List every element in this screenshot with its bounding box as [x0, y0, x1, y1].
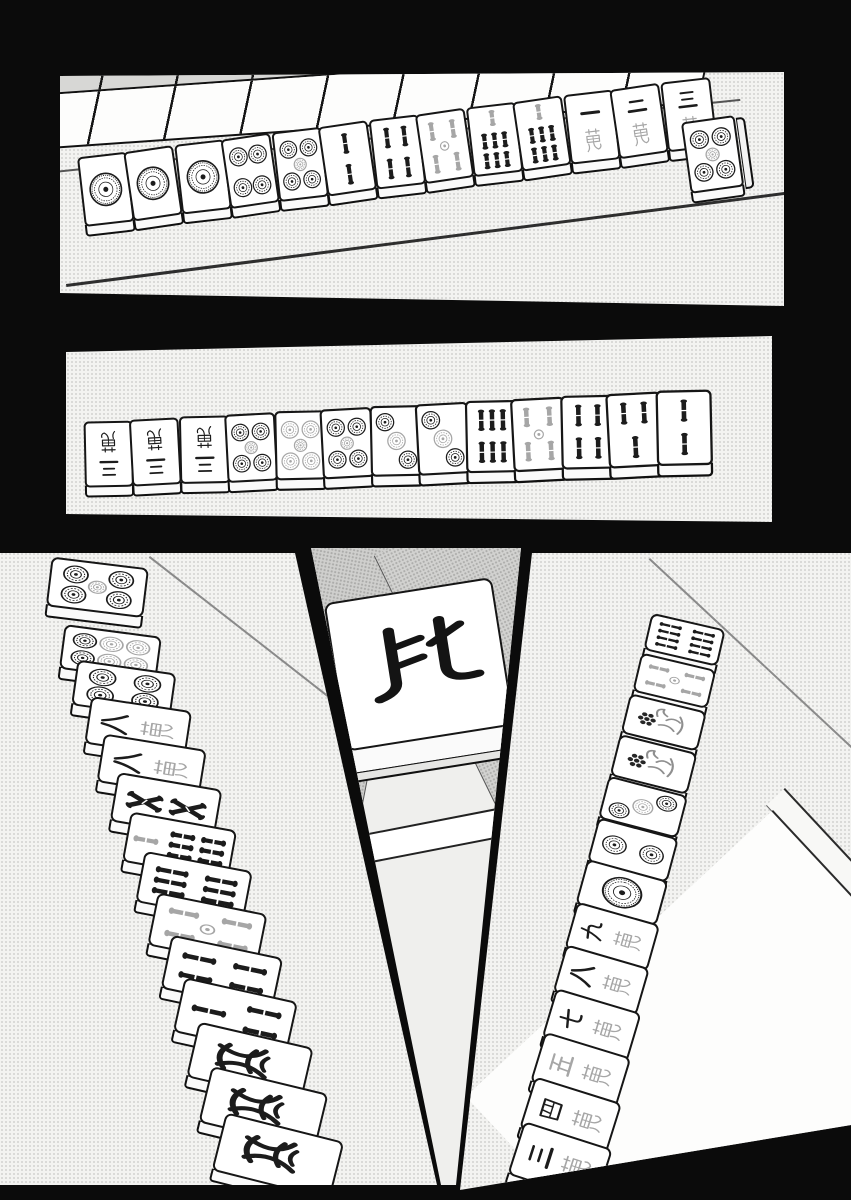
tile-face-art — [683, 117, 742, 191]
panel-right-hand — [455, 548, 851, 1200]
tile-face-art — [48, 559, 147, 616]
tile-wind-north-closeup — [324, 577, 520, 783]
tile-face-art — [125, 147, 180, 219]
tile-face-art — [611, 85, 666, 157]
manga-page — [0, 0, 851, 1200]
tile-face-art — [86, 423, 132, 486]
hand-row-middle — [82, 386, 709, 498]
tile-face-art — [514, 97, 569, 169]
tile-face-art — [512, 399, 565, 470]
tile-face-art — [658, 392, 711, 464]
tile-man-3 — [84, 421, 135, 498]
tile-man-3 — [129, 417, 183, 496]
panel-middle-hand — [66, 336, 772, 522]
tile-face-art — [326, 579, 513, 749]
tile-man-3 — [179, 415, 231, 494]
table-edge-line — [149, 556, 339, 705]
tile-face-art — [131, 419, 180, 484]
tile-dragon-hatsu — [208, 1112, 344, 1200]
tile-face-art — [276, 412, 325, 478]
panel-top-hand — [60, 72, 784, 312]
tile-pin-5-drawn — [681, 115, 746, 204]
tile-face-art — [223, 135, 278, 207]
tile-face-art — [181, 417, 228, 481]
tile-face-art — [372, 407, 422, 474]
tile-face-art — [417, 110, 472, 182]
tile-face-art — [607, 394, 662, 467]
tile-face-art — [417, 404, 469, 474]
tile-pin-5-drawn — [44, 556, 149, 628]
tile-pin-3 — [415, 402, 472, 487]
tile-sou-2 — [655, 389, 713, 477]
tile-face-art — [322, 409, 373, 477]
tile-face-art — [226, 414, 276, 481]
tile-pin-5 — [224, 412, 279, 493]
tile-face-art — [320, 122, 375, 194]
tile-pin-5 — [319, 407, 375, 490]
